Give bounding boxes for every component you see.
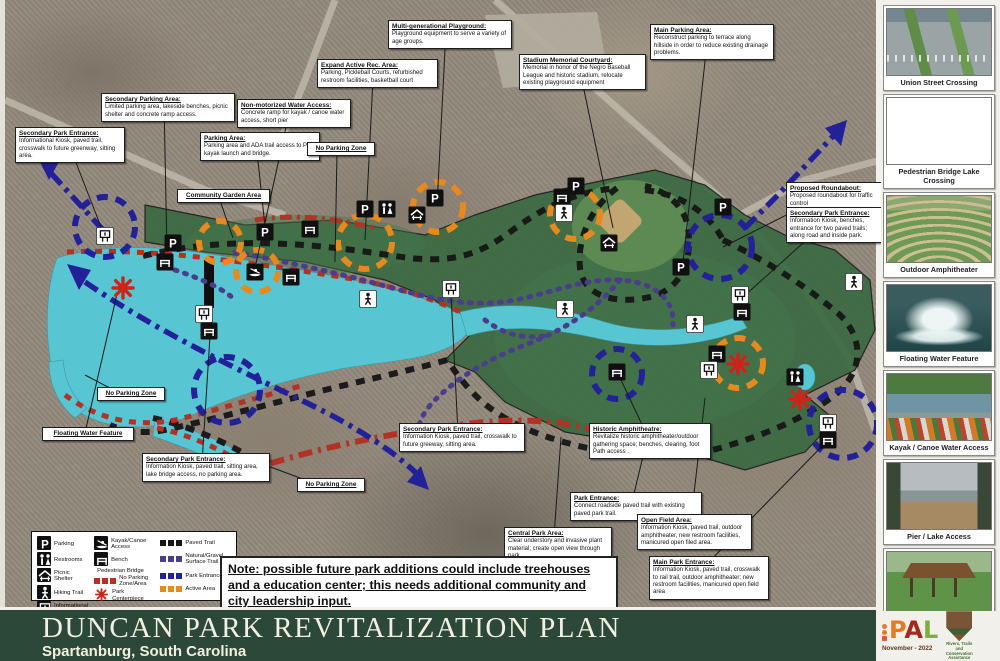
nps-arrowhead-icon [946, 611, 972, 641]
legend-label: Park Centerpiece [112, 589, 154, 601]
marker-picnic-icon [409, 207, 426, 224]
marker-kiosk-icon [732, 287, 749, 304]
marker-kiosk-icon [443, 281, 460, 298]
photo-card: Union Street Crossing [883, 5, 995, 91]
title-bar: DUNCAN PARK REVITALIZATION PLAN Spartanb… [0, 607, 876, 661]
callout-title: Secondary Park Entrance: [790, 210, 870, 217]
callout-body: Information Kiosk, paved trail, sitting … [146, 464, 266, 479]
callout-title: Park Entrance: [574, 495, 619, 502]
callout-title: Expand Active Rec. Area: [321, 62, 398, 69]
callout-title: Secondary Park Entrance: [403, 426, 483, 433]
photo-card: Kayak / Canoe Water Access [883, 370, 995, 456]
marker-parking-icon [357, 201, 374, 218]
legend-row: Bench [94, 552, 154, 568]
pal-letter: L [923, 616, 938, 644]
callout-secondary-park-entrance-e: Secondary Park Entrance:Information Kios… [786, 207, 881, 243]
hiker-icon [37, 585, 51, 599]
photo-pier [886, 462, 992, 530]
marker-kiosk-icon [97, 228, 114, 245]
note-box: Note: possible future park additions cou… [220, 556, 618, 607]
callout-title: Secondary Parking Area: [105, 96, 181, 103]
photo-caption: Kayak / Canoe Water Access [886, 441, 992, 453]
callout-multi-generational-playground: Multi-generational Playground:Playground… [388, 20, 512, 49]
legend-label: Park Entrance [185, 573, 222, 579]
marker-parking-icon [165, 235, 182, 252]
callout-body: Information Kiosk, paved trail, crosswal… [403, 434, 521, 449]
callout-title: No Parking Zone [106, 390, 157, 397]
marker-restroom-icon [787, 369, 804, 386]
callout-body: Information Kiosk, benches, entrance for… [790, 218, 881, 240]
callout-body: Parking, Pickleball Courts, refurbished … [321, 70, 434, 85]
marker-hiker-icon [556, 205, 573, 222]
callout-title: Non-motorized Water Access: [241, 102, 331, 109]
callout-title: Open Field Area: [641, 517, 692, 524]
marker-bench-icon [554, 189, 571, 206]
marker-bench-icon [820, 432, 837, 449]
legend-column: Kayak/Canoe AccessBenchPedestrian Bridge… [94, 536, 154, 596]
sw-orange-swatch [160, 586, 182, 592]
callout-community-garden-area: Community Garden Area [177, 189, 270, 203]
callout-main-parking-area: Main Parking Area:Reconstruct parking to… [650, 24, 774, 60]
marker-hiker-icon [557, 301, 574, 318]
callout-title: Historic Amphitheatre: [593, 426, 662, 433]
pal-letter: A [904, 616, 923, 644]
map-legend: ParkingRestroomsPicnic ShelterHiking Tra… [31, 531, 237, 601]
sw-red-swatch [94, 578, 116, 584]
photo-caption: Pier / Lake Access [886, 530, 992, 542]
callout-title: No Parking Zone [316, 145, 367, 152]
callout-main-park-entrance: Main Park Entrance:Information Kiosk, pa… [649, 556, 769, 600]
legend-row: No Parking Zone/Area [94, 575, 154, 587]
marker-bench-icon [609, 364, 626, 381]
park-entrance-circle [75, 197, 135, 257]
callout-body: Information Kiosk, paved trail, outdoor … [641, 525, 748, 547]
callout-title: Proposed Roundabout: [790, 185, 861, 192]
nps-logo: Rivers, Trails and Conservation Assistan… [942, 611, 976, 660]
photo-street [886, 8, 992, 76]
callout-open-field-area: Open Field Area:Information Kiosk, paved… [637, 514, 752, 550]
marker-parking-icon [715, 199, 732, 216]
marker-bench-icon [709, 346, 726, 363]
callout-body: Memorial in honor of the Negro Baseball … [523, 65, 642, 87]
callout-no-parking-zone-top: No Parking Zone [307, 142, 375, 156]
photo-card: Pier / Lake Access [883, 459, 995, 545]
photo-card: Floating Water Feature [883, 281, 995, 367]
park-centerpiece-icon [94, 587, 109, 602]
callout-stadium-memorial-courtyard: Stadium Memorial Courtyard:Memorial in h… [519, 54, 646, 90]
legend-row: Park Centerpiece [94, 587, 154, 604]
legend-label: Active Area [185, 586, 215, 592]
callout-body: Parking area and ADA trail access to Pie… [204, 143, 316, 158]
marker-restroom-icon [379, 201, 396, 218]
marker-parking-icon [427, 190, 444, 207]
credits-panel: PAL November - 2022 Rivers, Trails and C… [876, 611, 1000, 661]
callout-body: Limited parking area, lakeside benches, … [105, 104, 231, 119]
marker-hiker-icon [687, 316, 704, 333]
legend-row: Informational Kiosk [37, 601, 88, 607]
callout-title: Main Park Entrance: [653, 559, 714, 566]
marker-kayak-icon [247, 264, 264, 281]
page-subtitle: Spartanburg, South Carolina [42, 643, 876, 660]
marker-bench-icon [157, 254, 174, 271]
legend-label: Paved Trail [185, 540, 214, 546]
callout-no-parking-zone-left: No Parking Zone [97, 387, 165, 401]
parking-icon [37, 536, 51, 550]
pal-logo-letters: PAL [889, 621, 938, 643]
photo-fountain [886, 284, 992, 352]
photo-caption: Union Street Crossing [886, 76, 992, 88]
park-centerpiece-icon [113, 278, 133, 298]
pal-letter: P [889, 616, 904, 644]
marker-bench-icon [302, 221, 319, 238]
legend-row: Picnic Shelter [37, 568, 88, 584]
callout-body: Revitalize historic amphitheater/outdoor… [593, 434, 707, 456]
photo-caption: Floating Water Feature [886, 352, 992, 364]
kiosk-icon [37, 601, 51, 607]
callout-title: Parking Area: [204, 135, 245, 142]
photo-caption: Pedestrian Bridge Lake Crossing [886, 165, 992, 186]
sw-black-swatch [160, 540, 182, 546]
callout-historic-amphitheatre: Historic Amphitheatre:Revitalize histori… [589, 423, 711, 459]
callout-body: Information Kiosk, paved trail, crosswal… [653, 567, 765, 596]
photo-amph [886, 195, 992, 263]
marker-kiosk-icon [820, 415, 837, 432]
callout-title: Central Park Area: [508, 530, 564, 537]
marker-picnic-icon [601, 235, 618, 252]
legend-label: Hiking Trail [54, 590, 83, 596]
pal-logo: PAL November - 2022 [882, 621, 938, 652]
callout-title: No Parking Zone [306, 481, 357, 488]
callout-parking-area: Parking Area:Parking area and ADA trail … [200, 132, 320, 161]
legend-row: Restrooms [37, 552, 88, 568]
park-centerpiece-icon [728, 354, 748, 374]
bench-icon [94, 552, 108, 566]
photo-card: Pedestrian Bridge Lake Crossing [883, 94, 995, 189]
legend-label: Bench [111, 557, 128, 563]
picnic-icon [37, 568, 51, 582]
callout-body: Proposed roundabout for traffic control [790, 193, 881, 208]
callout-title: Multi-generational Playground: [392, 23, 486, 30]
callout-title: Stadium Memorial Courtyard: [523, 57, 612, 64]
photo-kayak [886, 373, 992, 441]
sw-purple-swatch [160, 556, 182, 562]
sw-blue-swatch [160, 573, 182, 579]
marker-hiker-icon [360, 291, 377, 308]
map-area: ParkingRestroomsPicnic ShelterHiking Tra… [0, 0, 881, 607]
callout-body: Concrete ramp for kayak / canoe water ac… [241, 110, 347, 125]
legend-row: Kayak/Canoe Access [94, 536, 154, 552]
callout-title: Secondary Park Entrance: [19, 130, 99, 137]
photo-bridge [886, 97, 992, 165]
callout-title: Floating Water Feature [53, 430, 122, 437]
callout-body: Informational Kiosk, paved trail, crossw… [19, 138, 121, 160]
callout-body: Playground equipment to serve a variety … [392, 31, 508, 46]
callout-non-motorized-water-access: Non-motorized Water Access:Concrete ramp… [237, 99, 351, 128]
legend-label: Informational Kiosk [54, 603, 88, 607]
marker-kiosk-icon [701, 362, 718, 379]
restroom-icon [37, 552, 51, 566]
credits-date: November - 2022 [882, 645, 932, 652]
kayak-icon [94, 536, 108, 550]
marker-bench-icon [283, 269, 300, 286]
callout-secondary-parking-area: Secondary Parking Area:Limited parking a… [101, 93, 235, 122]
photo-caption: Outdoor Amphitheater [886, 263, 992, 275]
legend-row: Parking [37, 536, 88, 552]
legend-label: Parking [54, 541, 74, 547]
marker-bench-icon [734, 304, 751, 321]
callout-no-parking-zone-right: No Parking Zone [297, 478, 365, 492]
callout-title: Secondary Park Entrance: [146, 456, 226, 463]
plan-sheet: P [0, 0, 1000, 661]
callout-secondary-park-entrance-nw: Secondary Park Entrance:Informational Ki… [15, 127, 125, 163]
marker-bench-icon [201, 323, 218, 340]
photo-sidebar: Union Street CrossingPedestrian Bridge L… [876, 0, 1000, 661]
marker-hiker-icon [846, 274, 863, 291]
nps-caption: Rivers, Trails and Conservation Assistan… [942, 642, 976, 660]
park-centerpiece-icon [790, 389, 810, 409]
legend-label: Restrooms [54, 557, 82, 563]
legend-label: Picnic Shelter [54, 570, 88, 582]
pal-logo-dots [882, 624, 887, 641]
callout-floating-water-feature: Floating Water Feature [42, 427, 134, 441]
legend-row: Hiking Trail [37, 585, 88, 601]
page-title: DUNCAN PARK REVITALIZATION PLAN [42, 613, 876, 643]
photo-card: Outdoor Amphitheater [883, 192, 995, 278]
callout-secondary-park-entrance-mid: Secondary Park Entrance:Information Kios… [399, 423, 525, 452]
callout-expand-active-rec-area: Expand Active Rec. Area:Parking, Pickleb… [317, 59, 438, 88]
marker-parking-icon [257, 224, 274, 241]
marker-kiosk-icon [196, 306, 213, 323]
legend-label: No Parking Zone/Area [119, 575, 154, 587]
legend-column: ParkingRestroomsPicnic ShelterHiking Tra… [37, 536, 88, 596]
legend-label: Kayak/Canoe Access [111, 538, 154, 550]
marker-parking-icon [673, 259, 690, 276]
callout-body: Reconstruct parking to terrace along hil… [654, 35, 770, 57]
callout-secondary-park-entrance-s: Secondary Park Entrance:Information Kios… [142, 453, 270, 482]
photo-shelter [886, 551, 992, 619]
callout-title: Main Parking Area: [654, 27, 712, 34]
callout-title: Community Garden Area [186, 192, 261, 199]
legend-row: Paved Trail [160, 540, 231, 546]
